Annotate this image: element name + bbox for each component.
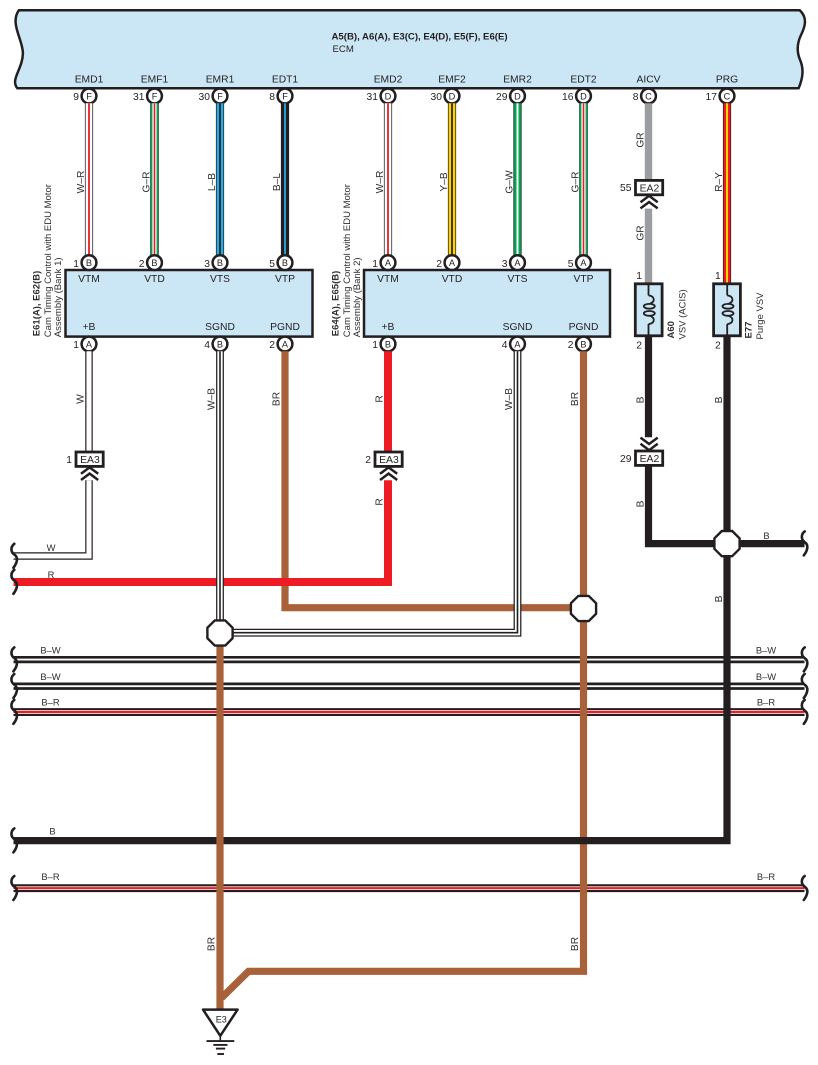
svg-text:EMD1: EMD1: [75, 75, 104, 86]
svg-text:A: A: [385, 258, 392, 268]
svg-text:EMR2: EMR2: [503, 75, 532, 86]
svg-text:ECM: ECM: [333, 44, 354, 55]
svg-text:B–L: B–L: [272, 173, 283, 191]
svg-text:BR: BR: [570, 392, 581, 406]
svg-text:D: D: [514, 91, 521, 101]
svg-text:3: 3: [204, 259, 210, 270]
svg-text:AICV: AICV: [636, 75, 660, 86]
svg-text:EMR1: EMR1: [206, 75, 235, 86]
svg-text:EDT2: EDT2: [570, 75, 597, 86]
svg-text:B: B: [282, 258, 288, 268]
svg-text:VTD: VTD: [442, 274, 463, 285]
svg-text:B–W: B–W: [40, 671, 60, 682]
svg-text:17: 17: [706, 92, 718, 103]
svg-text:PGND: PGND: [569, 322, 599, 333]
svg-text:EA3: EA3: [379, 455, 399, 466]
svg-text:VTM: VTM: [78, 274, 100, 285]
svg-text:A60: A60: [666, 321, 677, 338]
svg-text:F: F: [86, 91, 92, 101]
svg-text:R: R: [375, 498, 386, 505]
svg-text:GR: GR: [635, 132, 646, 147]
svg-text:A: A: [86, 339, 93, 349]
svg-text:B–W: B–W: [756, 645, 776, 656]
svg-text:29: 29: [496, 92, 508, 103]
svg-text:R: R: [375, 395, 386, 402]
svg-text:Purge VSV: Purge VSV: [755, 292, 766, 340]
svg-text:W: W: [47, 542, 56, 553]
svg-text:9: 9: [73, 92, 79, 103]
svg-text:B: B: [385, 339, 391, 349]
svg-text:2: 2: [715, 341, 721, 352]
svg-text:F: F: [217, 91, 223, 101]
svg-text:F: F: [282, 91, 288, 101]
svg-text:E77: E77: [743, 322, 754, 339]
svg-text:W–B: W–B: [504, 388, 515, 410]
svg-text:1: 1: [636, 271, 642, 282]
svg-text:D: D: [385, 91, 392, 101]
svg-text:W–R: W–R: [76, 171, 87, 194]
svg-text:W–R: W–R: [375, 171, 386, 194]
svg-text:C: C: [645, 91, 652, 101]
svg-text:B: B: [714, 595, 725, 602]
svg-text:SGND: SGND: [205, 322, 235, 333]
svg-text:Y–B: Y–B: [439, 172, 450, 191]
svg-text:BR: BR: [570, 937, 581, 951]
svg-text:B: B: [151, 258, 157, 268]
svg-text:D: D: [580, 91, 587, 101]
svg-text:1: 1: [73, 259, 79, 270]
svg-text:W–B: W–B: [207, 388, 218, 410]
svg-text:4: 4: [204, 340, 210, 351]
svg-text:GR: GR: [635, 225, 646, 240]
svg-text:A: A: [514, 339, 521, 349]
svg-text:B: B: [49, 825, 55, 836]
svg-text:B–R: B–R: [757, 871, 775, 882]
svg-text:W: W: [76, 394, 87, 404]
svg-text:31: 31: [133, 92, 145, 103]
svg-text:Assembly (Bank 2): Assembly (Bank 2): [352, 257, 363, 337]
svg-text:2: 2: [568, 340, 574, 351]
svg-text:30: 30: [199, 92, 211, 103]
svg-text:G–W: G–W: [504, 170, 515, 194]
svg-text:4: 4: [502, 340, 508, 351]
svg-text:2: 2: [436, 259, 442, 270]
svg-text:EA2: EA2: [640, 454, 660, 465]
svg-text:B: B: [763, 530, 769, 541]
svg-text:EMD2: EMD2: [374, 75, 403, 86]
svg-text:5: 5: [568, 259, 574, 270]
svg-text:B–W: B–W: [40, 645, 60, 656]
svg-text:5: 5: [269, 259, 275, 270]
svg-text:BR: BR: [206, 937, 217, 951]
svg-text:E64(A), E65(B): E64(A), E65(B): [331, 271, 342, 336]
svg-text:L–B: L–B: [207, 173, 218, 191]
svg-text:E3: E3: [216, 1015, 227, 1025]
svg-text:G–R: G–R: [141, 172, 152, 193]
svg-text:16: 16: [562, 92, 574, 103]
svg-text:8: 8: [633, 92, 639, 103]
svg-text:VTS: VTS: [507, 274, 527, 285]
svg-text:8: 8: [269, 92, 275, 103]
svg-text:EA3: EA3: [80, 455, 100, 466]
svg-text:2: 2: [269, 340, 275, 351]
svg-text:VTS: VTS: [210, 274, 230, 285]
svg-text:R: R: [48, 569, 55, 580]
svg-text:B: B: [217, 258, 223, 268]
svg-text:B–W: B–W: [756, 671, 776, 682]
svg-text:B–R: B–R: [41, 871, 59, 882]
svg-text:B–R: B–R: [41, 697, 59, 708]
svg-text:A: A: [580, 258, 587, 268]
svg-text:+B: +B: [382, 322, 395, 333]
svg-text:31: 31: [367, 92, 379, 103]
svg-text:+B: +B: [83, 322, 96, 333]
svg-text:PRG: PRG: [716, 75, 738, 86]
svg-text:G–R: G–R: [570, 172, 581, 193]
svg-text:VSV (ACIS): VSV (ACIS): [677, 289, 688, 339]
svg-text:1: 1: [372, 340, 378, 351]
svg-text:VTD: VTD: [144, 274, 165, 285]
svg-text:29: 29: [620, 454, 632, 465]
svg-text:B: B: [580, 339, 586, 349]
svg-text:55: 55: [620, 183, 632, 194]
svg-text:F: F: [152, 91, 158, 101]
svg-text:EA2: EA2: [640, 183, 660, 194]
svg-text:B: B: [635, 500, 646, 507]
svg-text:B–R: B–R: [757, 697, 775, 708]
svg-text:B: B: [217, 339, 223, 349]
svg-text:D: D: [449, 91, 456, 101]
svg-text:A: A: [449, 258, 456, 268]
svg-text:B: B: [86, 258, 92, 268]
svg-text:B: B: [635, 396, 646, 403]
svg-text:1: 1: [715, 271, 721, 282]
svg-text:BR: BR: [272, 392, 283, 406]
svg-text:3: 3: [502, 259, 508, 270]
svg-text:SGND: SGND: [503, 322, 533, 333]
svg-text:R–Y: R–Y: [714, 172, 725, 192]
svg-text:A: A: [514, 258, 521, 268]
svg-text:1: 1: [73, 340, 79, 351]
svg-text:EMF2: EMF2: [438, 75, 466, 86]
svg-text:VTP: VTP: [573, 274, 593, 285]
svg-text:EMF1: EMF1: [141, 75, 169, 86]
svg-text:2: 2: [365, 455, 371, 466]
svg-text:E61(A), E62(B): E61(A), E62(B): [32, 271, 43, 336]
svg-text:A5(B), A6(A), E3(C), E4(D), E5: A5(B), A6(A), E3(C), E4(D), E5(F), E6(E): [332, 32, 508, 43]
svg-text:1: 1: [372, 259, 378, 270]
svg-text:PGND: PGND: [270, 322, 300, 333]
svg-text:2: 2: [636, 341, 642, 352]
svg-text:B: B: [714, 396, 725, 403]
svg-text:30: 30: [431, 92, 443, 103]
svg-text:A: A: [282, 339, 289, 349]
svg-text:Assembly (Bank 1): Assembly (Bank 1): [53, 257, 64, 337]
svg-text:VTP: VTP: [275, 274, 295, 285]
svg-text:1: 1: [66, 455, 72, 466]
svg-text:EDT1: EDT1: [272, 75, 299, 86]
svg-text:2: 2: [139, 259, 145, 270]
svg-text:VTM: VTM: [377, 274, 399, 285]
svg-text:C: C: [724, 91, 731, 101]
